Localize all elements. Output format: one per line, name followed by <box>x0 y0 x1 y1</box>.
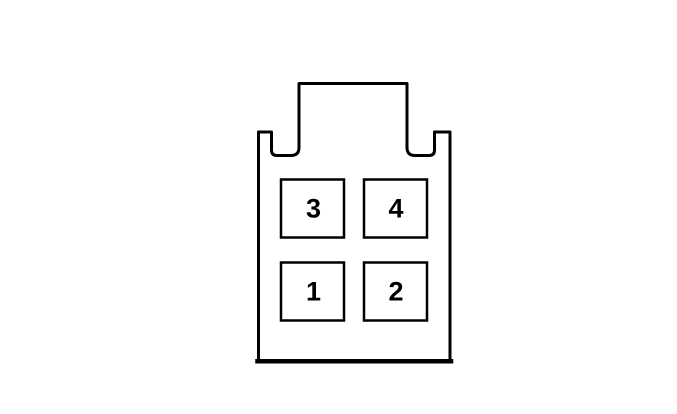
pin-cavity-3: 3 <box>281 180 344 238</box>
pin-number-label: 1 <box>306 277 321 307</box>
pin-cavity-1: 1 <box>281 263 344 321</box>
pin-number-label: 3 <box>306 194 321 224</box>
pin-cavity-4: 4 <box>364 180 427 238</box>
pin-number-label: 4 <box>388 194 403 224</box>
connector-diagram-canvas: 3 4 1 2 <box>0 0 677 414</box>
pin-number-label: 2 <box>388 277 403 307</box>
pin-cavity-2: 2 <box>364 263 427 321</box>
connector-diagram: 3 4 1 2 <box>0 0 677 414</box>
